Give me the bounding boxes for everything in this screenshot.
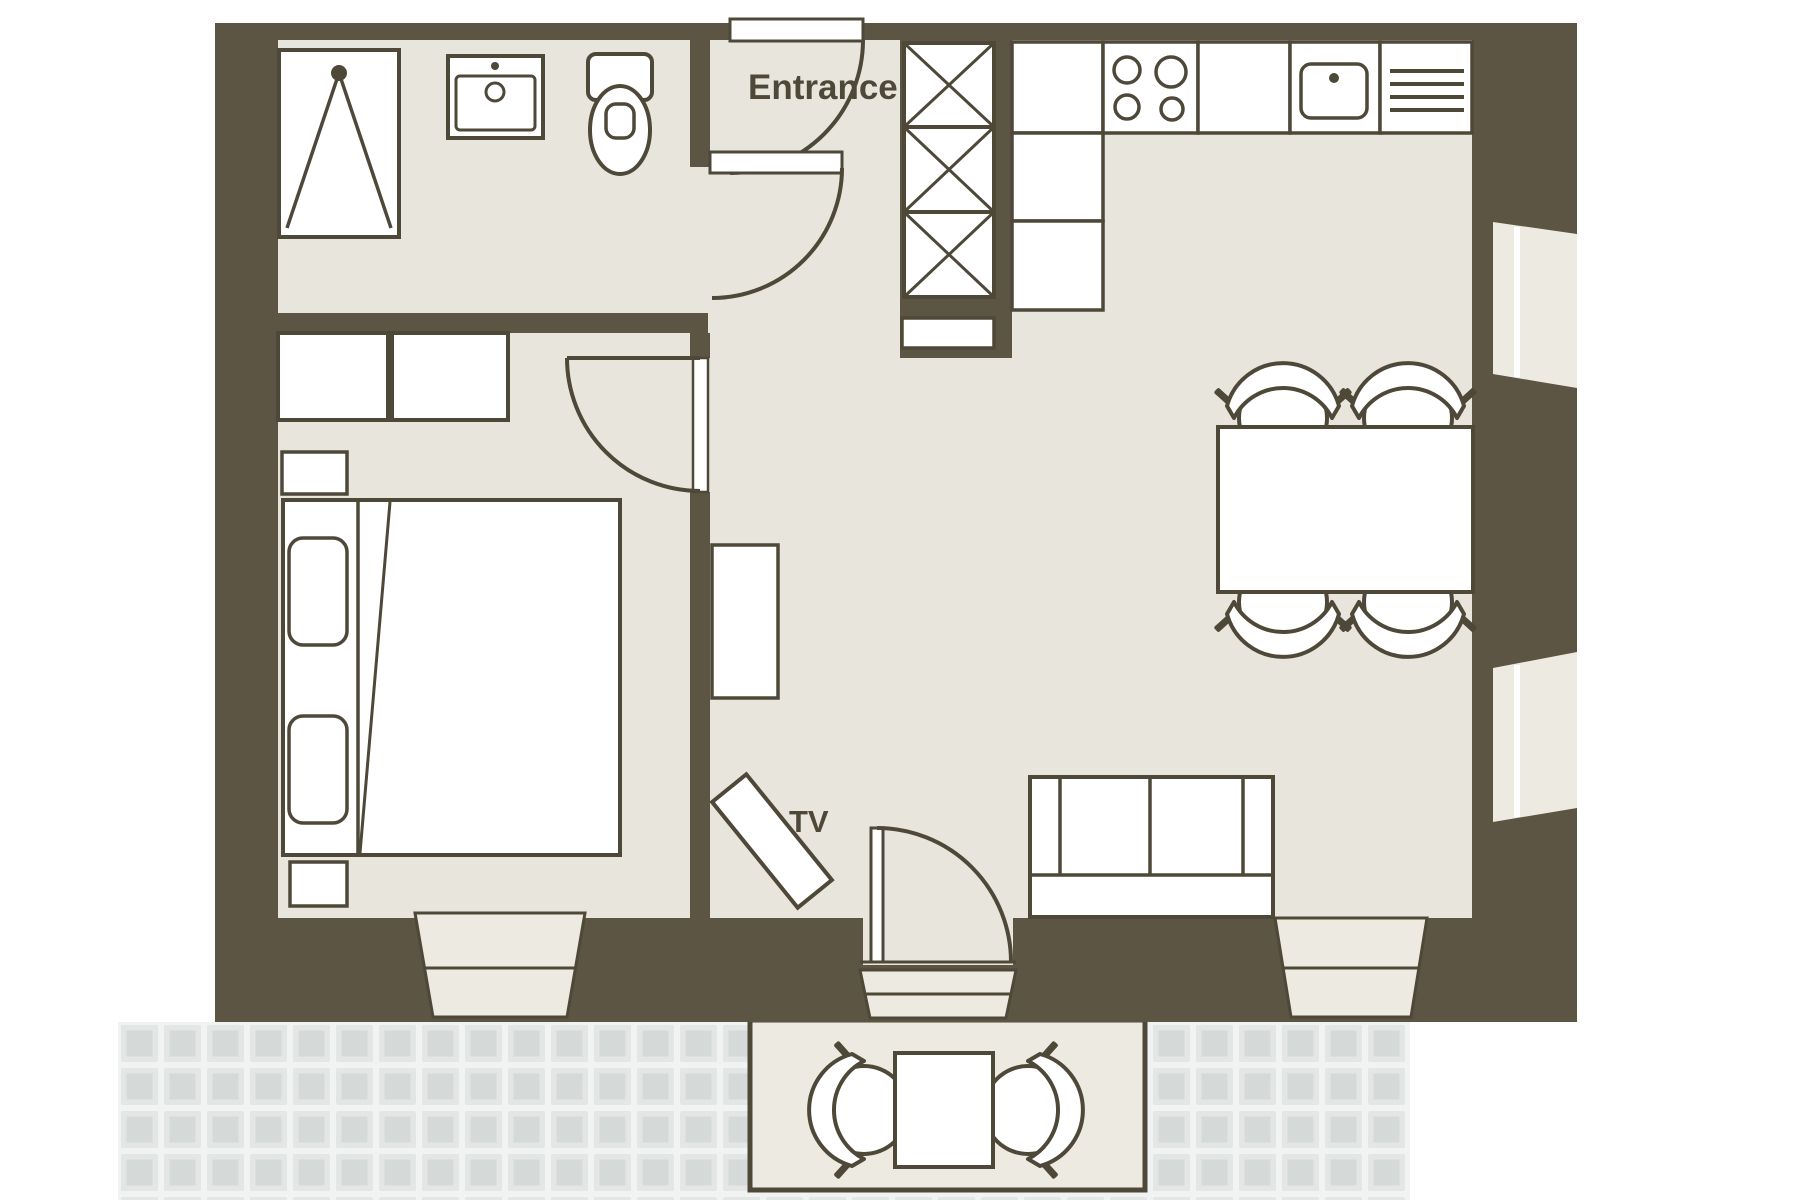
- shower: [279, 50, 399, 237]
- window-right-upper: [1493, 222, 1577, 388]
- toilet: [588, 54, 652, 174]
- kitchen-sink: [1290, 42, 1380, 133]
- counter-unit: [1198, 42, 1290, 133]
- door-leaf: [693, 358, 708, 492]
- partition-bedroom-lower: [690, 492, 710, 918]
- burner: [1156, 57, 1186, 87]
- partition-bathroom-bottom: [278, 313, 708, 333]
- faucet-dot: [1329, 73, 1339, 83]
- sofa: [1030, 777, 1273, 917]
- floor-plan: Entrance TV: [0, 0, 1800, 1200]
- door-opening: [863, 918, 1013, 965]
- counter-unit: [1012, 221, 1103, 310]
- tv-console: [712, 545, 778, 698]
- tall-cabinet: [904, 43, 994, 297]
- burner: [1114, 57, 1140, 83]
- bathroom-sink: [448, 56, 543, 138]
- drain: [486, 83, 504, 101]
- stove: [1103, 42, 1198, 133]
- nightstand: [282, 452, 347, 494]
- window-bay-left: [415, 913, 585, 1017]
- closet: [392, 333, 508, 420]
- wall-top: [215, 23, 1577, 40]
- entrance-label: Entrance: [748, 68, 898, 107]
- door-leaf: [871, 828, 883, 962]
- faucet-dot: [491, 62, 499, 70]
- window-right-lower: [1493, 652, 1577, 822]
- patio-furniture: [809, 1041, 1083, 1180]
- patio-table: [895, 1053, 993, 1167]
- partition-hall-upper: [690, 40, 710, 167]
- burner: [1161, 98, 1183, 120]
- tv-label: TV: [789, 804, 829, 839]
- nightstand: [290, 862, 347, 906]
- low-cabinet: [902, 318, 994, 348]
- counter-unit: [1012, 42, 1103, 133]
- closet: [278, 333, 388, 420]
- wall-left: [215, 23, 278, 1022]
- door-leaf: [730, 19, 863, 41]
- drainer: [1380, 42, 1472, 133]
- wall-right: [1472, 23, 1577, 1022]
- pillow: [289, 716, 347, 823]
- bowl: [590, 86, 650, 174]
- shower-head: [331, 65, 347, 81]
- burner: [1115, 95, 1139, 119]
- double-bed: [283, 500, 620, 855]
- partition-bedroom-stub: [690, 333, 710, 358]
- counter-unit: [1012, 133, 1103, 221]
- pillow: [289, 538, 347, 645]
- dining-table: [1218, 427, 1473, 592]
- door-leaf: [710, 152, 842, 173]
